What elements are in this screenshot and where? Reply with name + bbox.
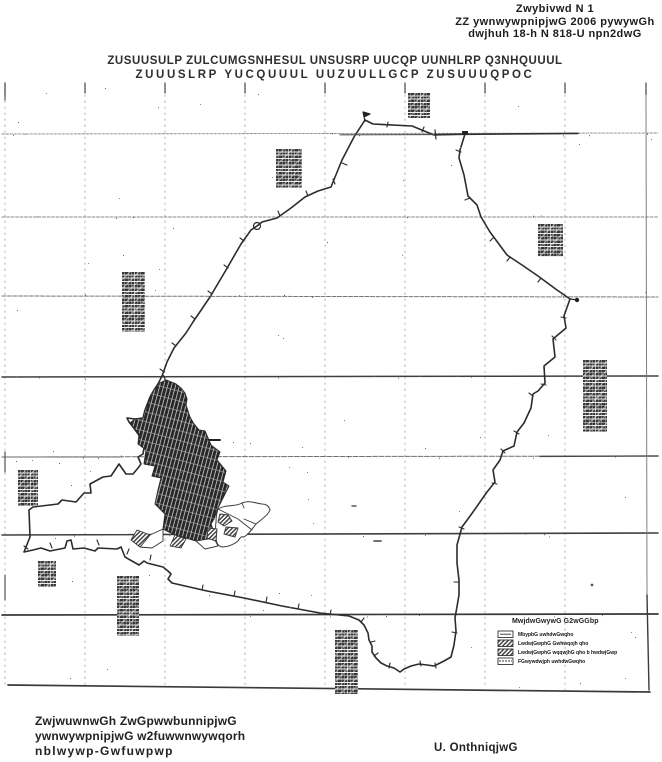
svg-text:LwdwjGwphG Gwhwqojh qho: LwdwjGwphG Gwhwqojh qho xyxy=(518,641,588,647)
svg-text:LwdwjGwphG wqqwjhG qho b hwdwj: LwdwjGwphG wqqwjhG qho b hwdwjGwp xyxy=(518,650,617,656)
svg-text:MbypbG uwhdwGwqho: MbypbG uwhdwGwqho xyxy=(518,632,573,638)
svg-text:FGwywdwjph uwhdwGwqho: FGwywdwjph uwhdwGwqho xyxy=(518,659,585,665)
